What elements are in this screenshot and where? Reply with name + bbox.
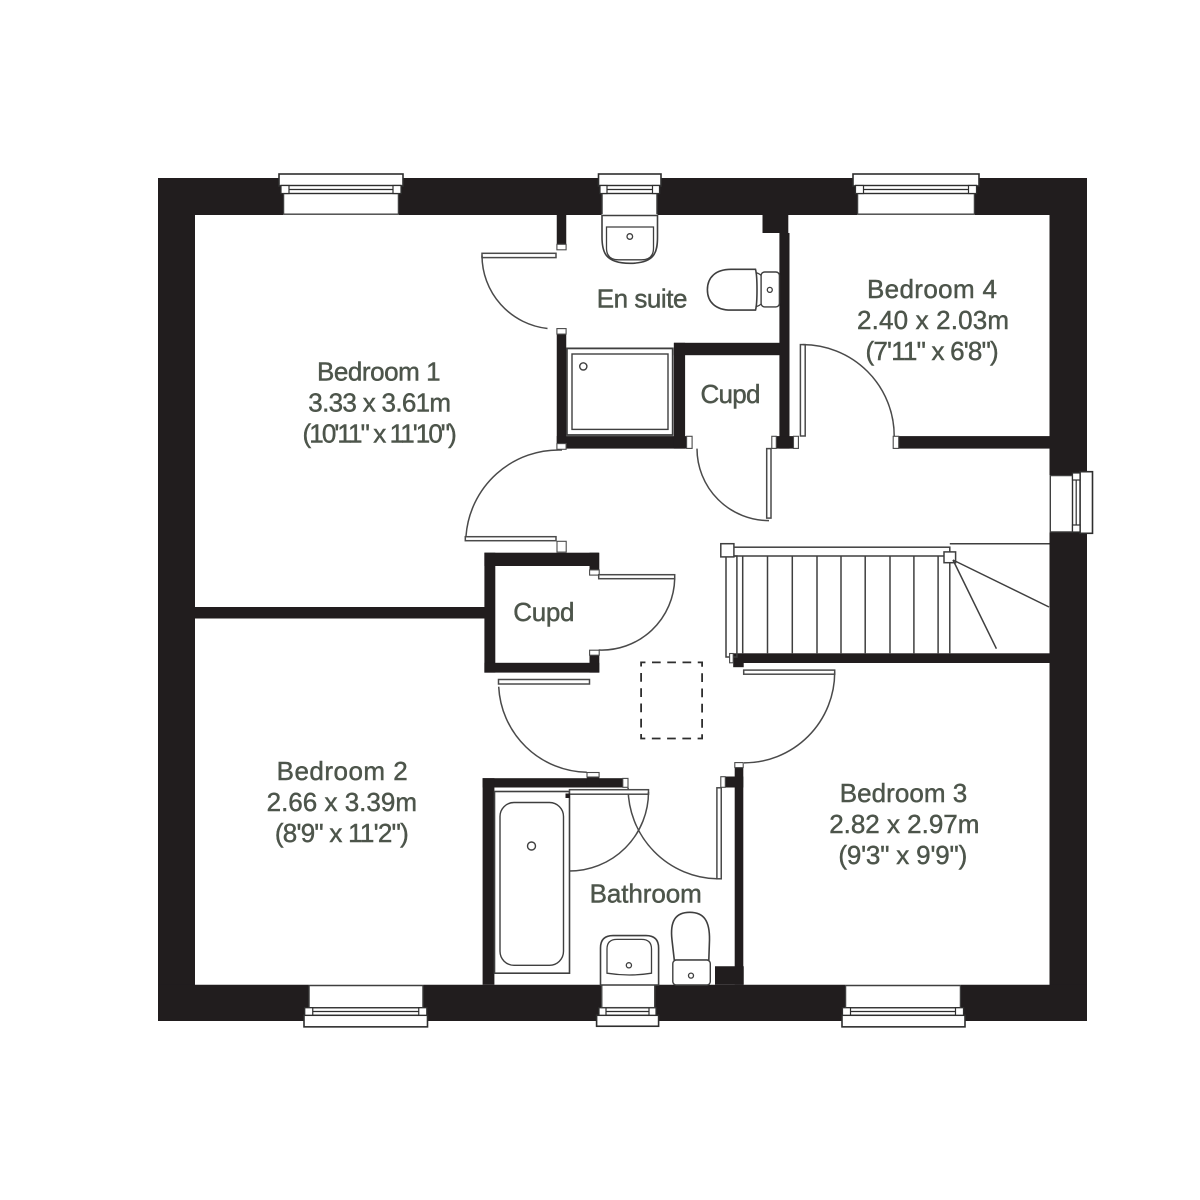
svg-text:Bathroom: Bathroom: [590, 878, 702, 908]
svg-text:Bedroom 2: Bedroom 2: [277, 756, 408, 786]
svg-text:2.82 x 2.97m: 2.82 x 2.97m: [829, 809, 979, 839]
svg-text:Bedroom 3: Bedroom 3: [840, 778, 968, 808]
svg-text:(9'3" x 9'9"): (9'3" x 9'9"): [838, 840, 967, 870]
svg-text:En suite: En suite: [597, 283, 688, 313]
svg-text:3.33 x 3.61m: 3.33 x 3.61m: [308, 388, 451, 418]
svg-text:2.40 x 2.03m: 2.40 x 2.03m: [857, 305, 1009, 335]
svg-text:Bedroom 1: Bedroom 1: [317, 357, 441, 387]
svg-text:Cupd: Cupd: [701, 379, 761, 409]
svg-text:(8'9" x 11'2"): (8'9" x 11'2"): [275, 818, 409, 848]
svg-text:(7'11" x 6'8"): (7'11" x 6'8"): [866, 336, 999, 366]
svg-text:(10'11" x 11'10"): (10'11" x 11'10"): [303, 419, 457, 449]
svg-text:2.66 x 3.39m: 2.66 x 3.39m: [267, 787, 417, 817]
svg-text:Cupd: Cupd: [513, 597, 574, 627]
svg-text:Bedroom 4: Bedroom 4: [867, 274, 997, 304]
